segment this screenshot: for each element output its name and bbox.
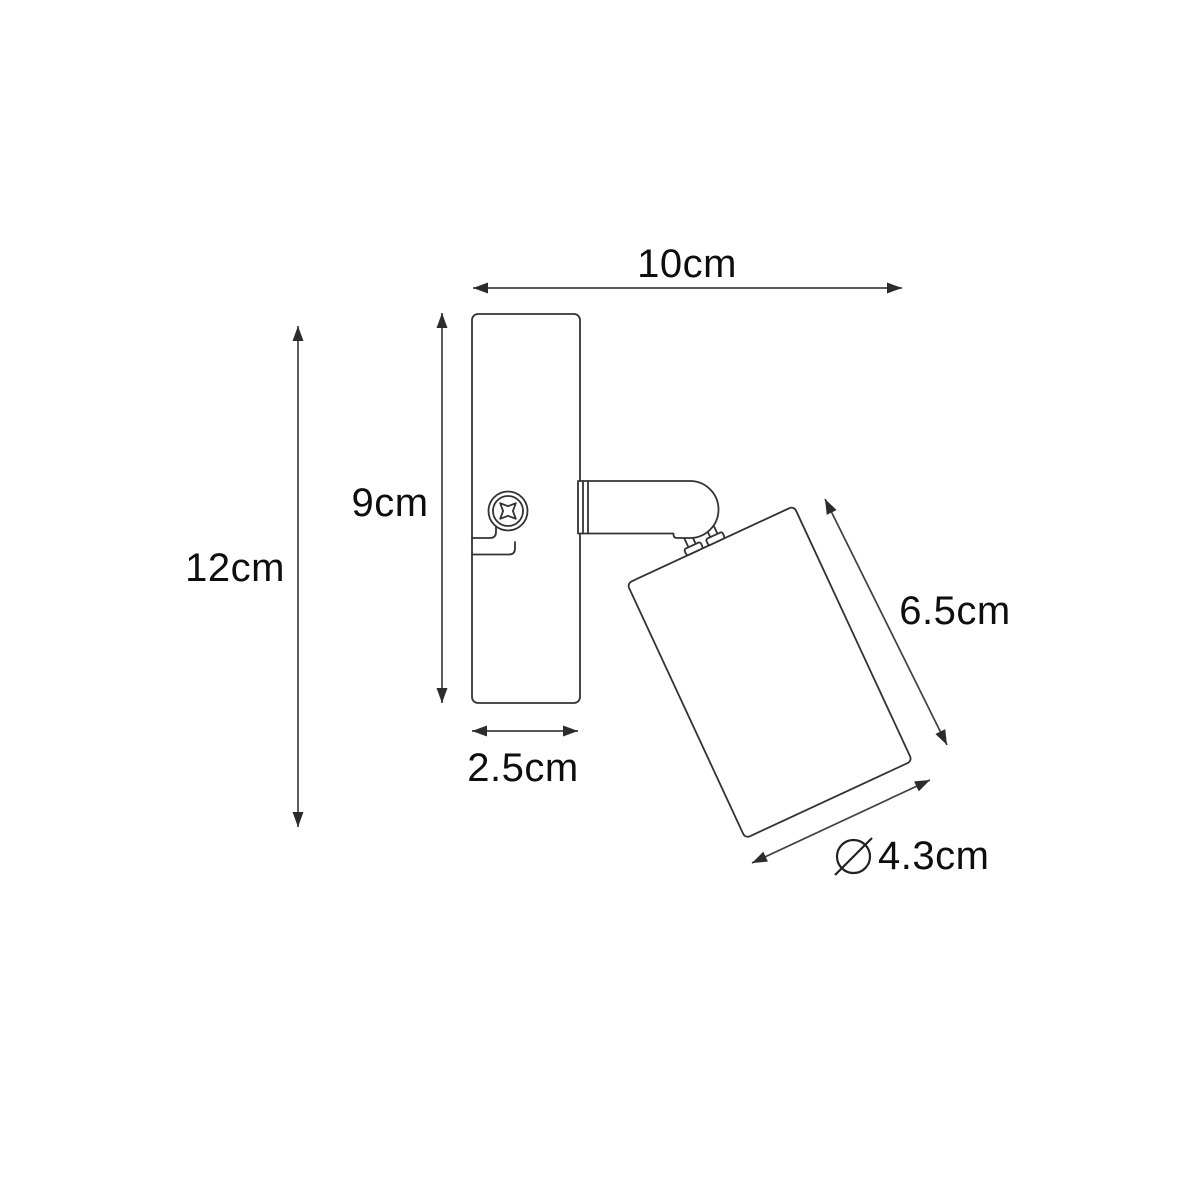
diagram-canvas: 10cm 9cm 12cm 2.5cm 6.5cm 4.3cm [0,0,1200,1200]
label-shade-length: 6.5cm [899,589,1010,633]
dimension-diagram: 10cm 9cm 12cm 2.5cm 6.5cm 4.3cm [0,0,1200,1200]
label-plate-height: 9cm [351,481,428,525]
label-shade-diameter: 4.3cm [878,834,989,878]
label-plate-width: 2.5cm [467,746,578,790]
swivel-arm-group [578,481,719,538]
spot-head-group [618,487,912,839]
label-total-width: 10cm [637,242,737,286]
diameter-icon [835,838,872,875]
label-total-height: 12cm [185,546,285,590]
screw-icon [489,492,528,531]
screw-outer-ring [489,492,528,531]
swivel-arm [578,481,719,538]
spot-head-shade [627,506,912,838]
